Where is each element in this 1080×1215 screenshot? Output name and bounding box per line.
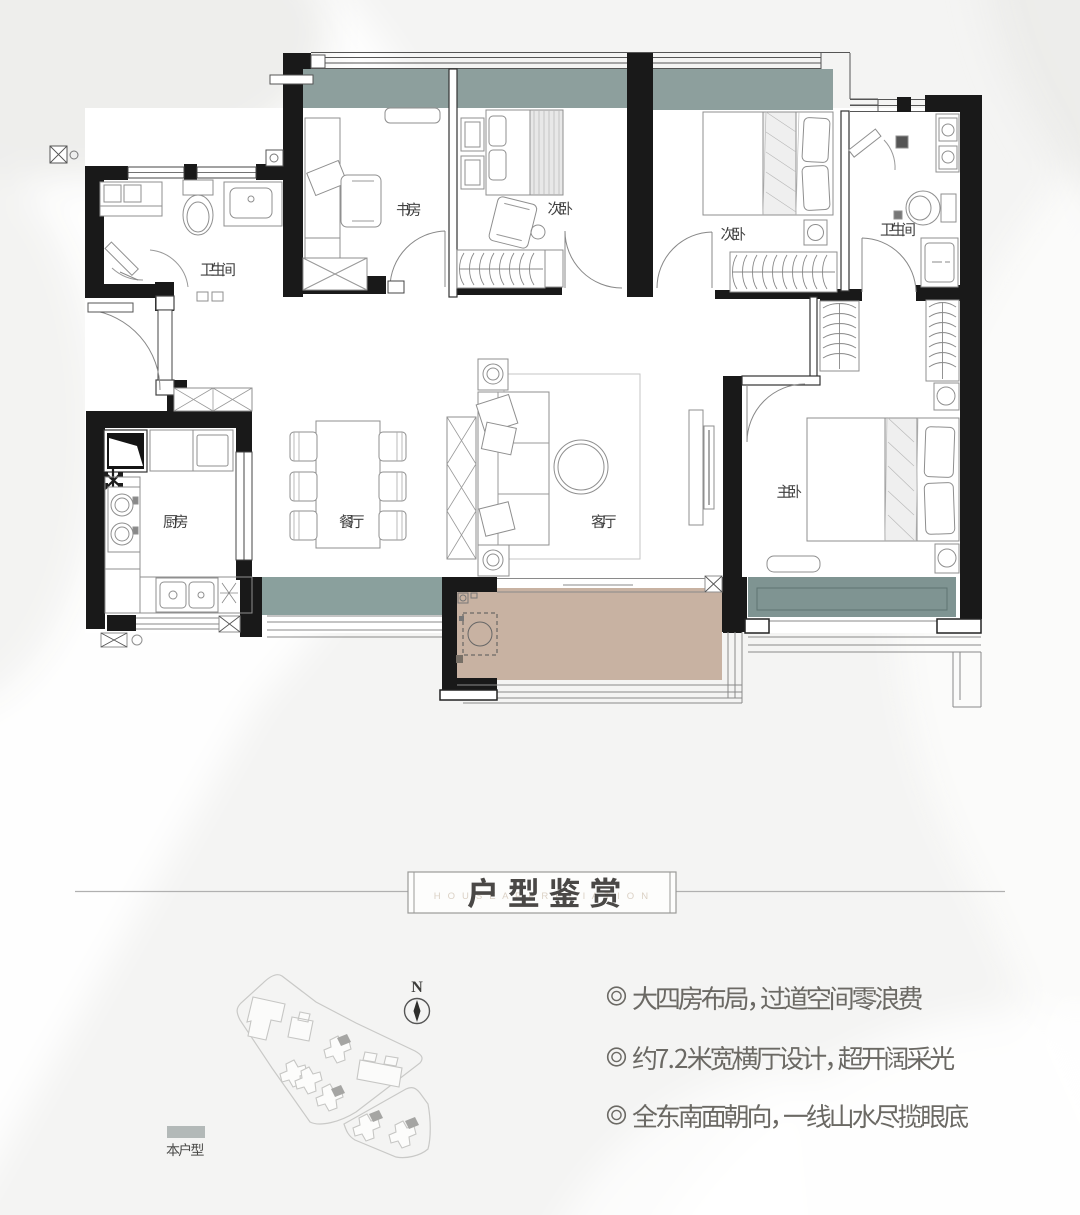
svg-text:N: N: [411, 979, 423, 996]
svg-text:H O U S E A P P R E C I A T: H O U S E A P P R E C I A T I O N: [434, 891, 651, 902]
